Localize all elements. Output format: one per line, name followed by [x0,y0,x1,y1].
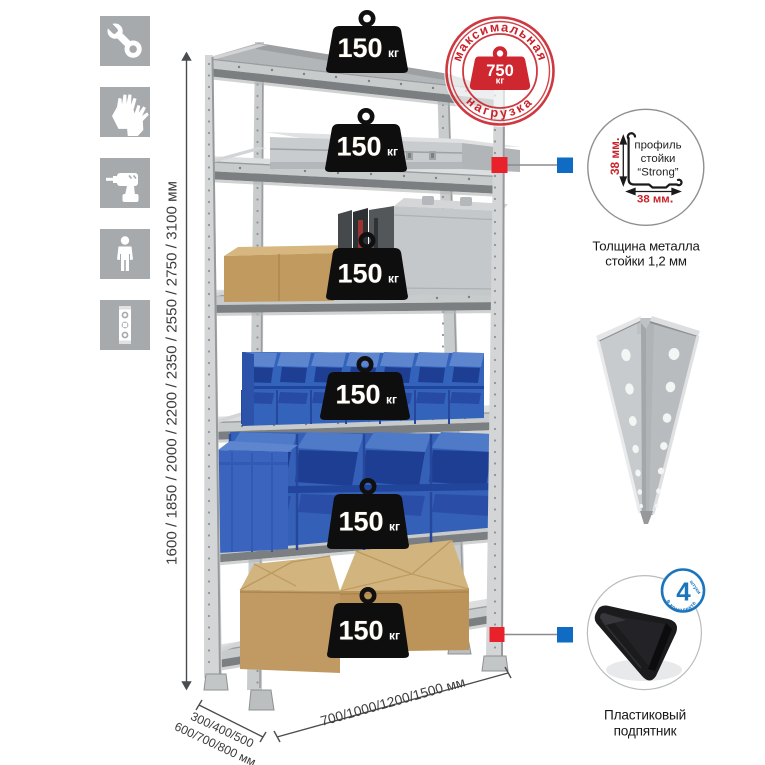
svg-text:38 мм.: 38 мм. [607,138,622,175]
svg-text:Пластиковый: Пластиковый [604,708,686,723]
svg-text:150: 150 [338,615,383,645]
svg-text:кг: кг [389,628,400,642]
svg-text:Толщина металла: Толщина металла [592,239,700,254]
svg-text:кг: кг [386,393,397,407]
svg-text:кг: кг [388,46,399,60]
svg-text:профиль: профиль [634,140,681,152]
svg-text:150: 150 [337,258,382,288]
svg-text:кг: кг [389,519,400,533]
svg-text:38 мм.: 38 мм. [637,191,673,206]
svg-text:“Strong”: “Strong” [637,167,678,179]
svg-text:кг: кг [496,76,505,87]
svg-text:стойки: стойки [641,153,676,165]
svg-text:подпятник: подпятник [614,724,678,739]
svg-text:150: 150 [336,132,381,162]
svg-text:кг: кг [388,271,399,285]
svg-text:150: 150 [337,33,382,63]
svg-text:150: 150 [338,506,383,536]
svg-text:150: 150 [335,380,380,410]
svg-text:1600 / 1850 / 2000 / 2200 / 23: 1600 / 1850 / 2000 / 2200 / 2350 / 2550 … [164,181,181,565]
svg-text:стойки 1,2 мм: стойки 1,2 мм [605,254,687,269]
svg-text:кг: кг [387,145,398,159]
